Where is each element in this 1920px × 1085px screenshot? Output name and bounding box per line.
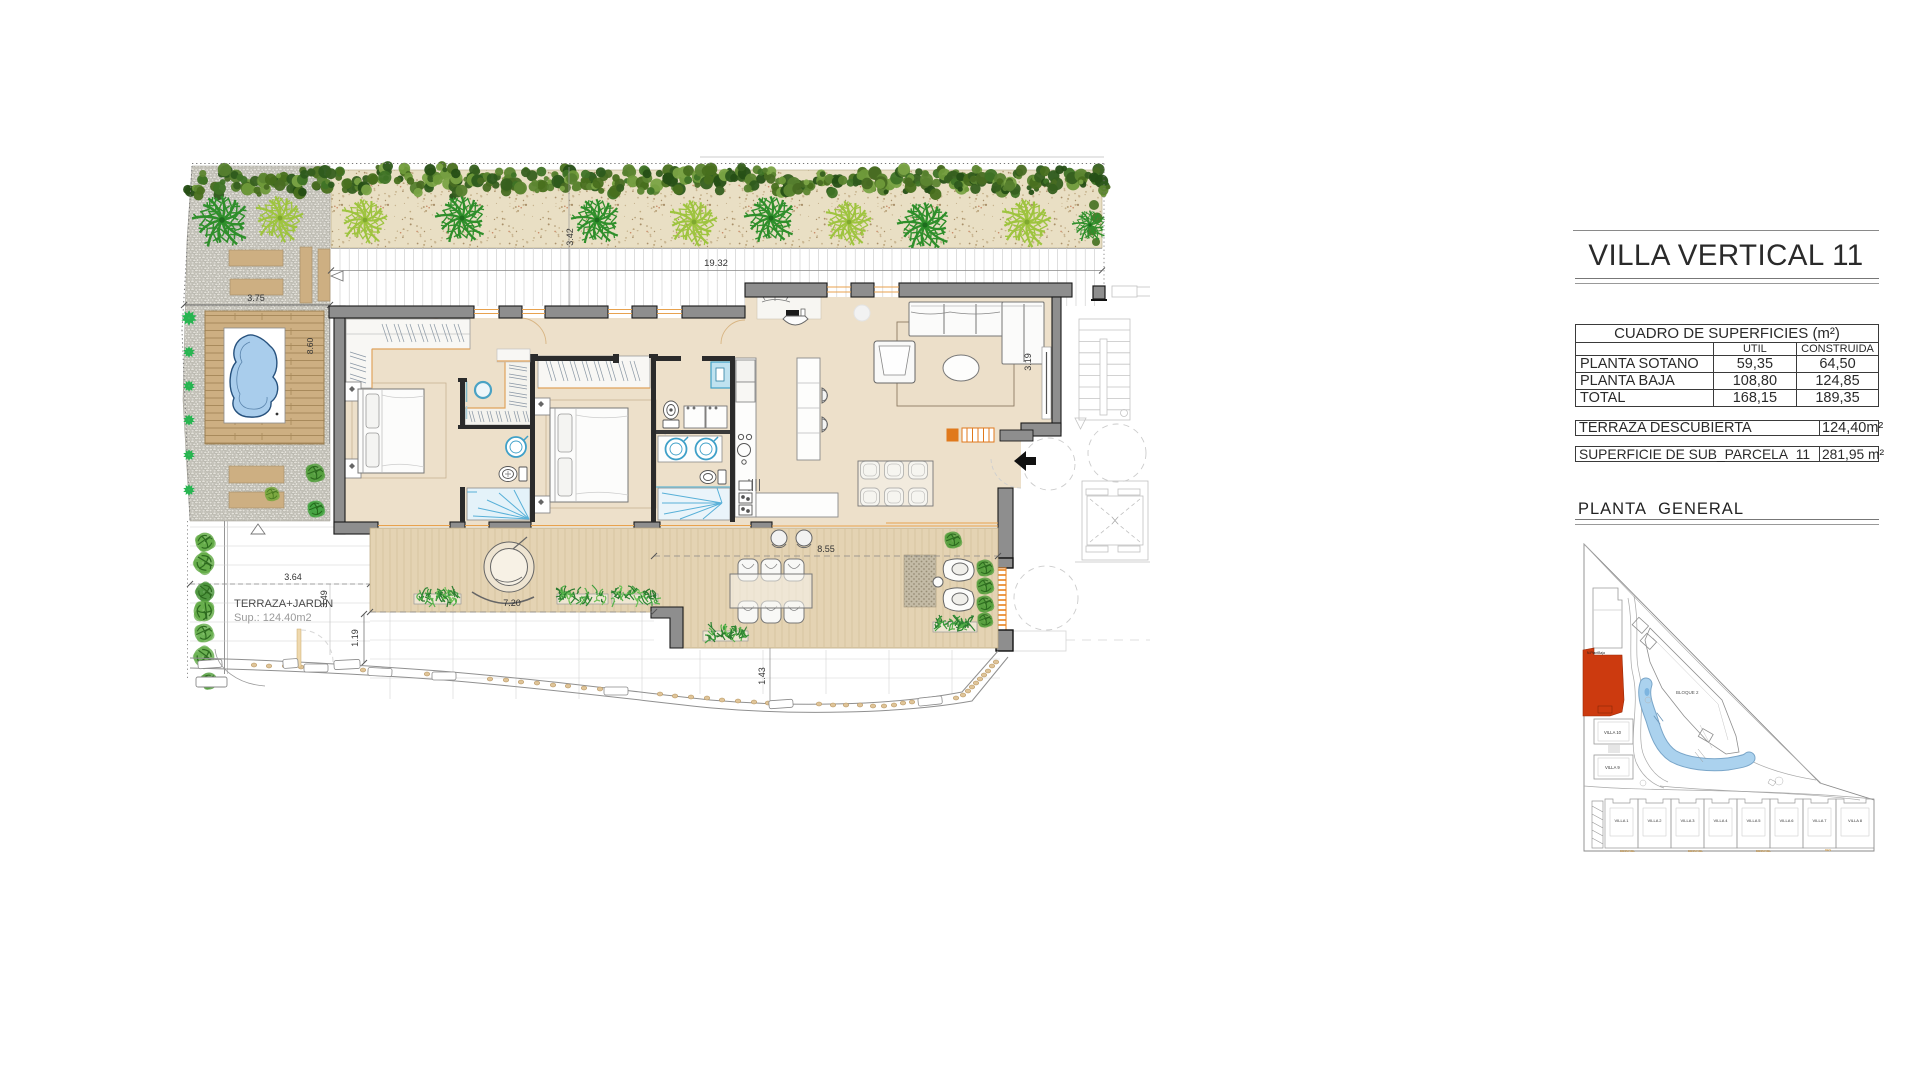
svg-text:DES: DES	[1825, 848, 1831, 852]
svg-text:DESNIVEL: DESNIVEL	[1620, 849, 1635, 853]
svg-text:VILLA 9: VILLA 9	[1605, 765, 1620, 770]
svg-text:VILLA 7: VILLA 7	[1812, 818, 1827, 823]
svg-text:8.55: 8.55	[817, 544, 835, 554]
svg-text:VILLA 5: VILLA 5	[1746, 818, 1761, 823]
svg-text:DESNIVEL: DESNIVEL	[1756, 849, 1771, 853]
svg-text:VILLA 4: VILLA 4	[1713, 818, 1728, 823]
svg-text:VILLA 6: VILLA 6	[1779, 818, 1794, 823]
svg-text:VILLA 10: VILLA 10	[1604, 730, 1622, 735]
svg-text:VILLA 1: VILLA 1	[1614, 818, 1629, 823]
svg-text:3.42: 3.42	[565, 228, 575, 246]
svg-text:DESNIVEL: DESNIVEL	[1688, 849, 1703, 853]
svg-text:TERRAZA+JARDIN: TERRAZA+JARDIN	[234, 598, 333, 610]
svg-text:VILLA 8: VILLA 8	[1848, 818, 1863, 823]
svg-text:N.PlantBaja: N.PlantBaja	[1587, 651, 1605, 655]
svg-text:19.32: 19.32	[704, 258, 728, 269]
svg-text:1.19: 1.19	[350, 629, 360, 647]
svg-text:VILLA 2: VILLA 2	[1647, 818, 1662, 823]
svg-text:3.75: 3.75	[247, 293, 265, 303]
svg-text:1.43: 1.43	[757, 667, 767, 685]
svg-text:7.20: 7.20	[503, 598, 521, 608]
svg-text:3.64: 3.64	[284, 572, 302, 582]
svg-text:VILLA 3: VILLA 3	[1680, 818, 1695, 823]
svg-text:BLOQUE 2: BLOQUE 2	[1676, 690, 1699, 695]
svg-text:8.60: 8.60	[305, 337, 315, 354]
svg-text:Sup.: 124.40m2: Sup.: 124.40m2	[234, 612, 312, 624]
svg-text:3.19: 3.19	[1023, 353, 1033, 371]
